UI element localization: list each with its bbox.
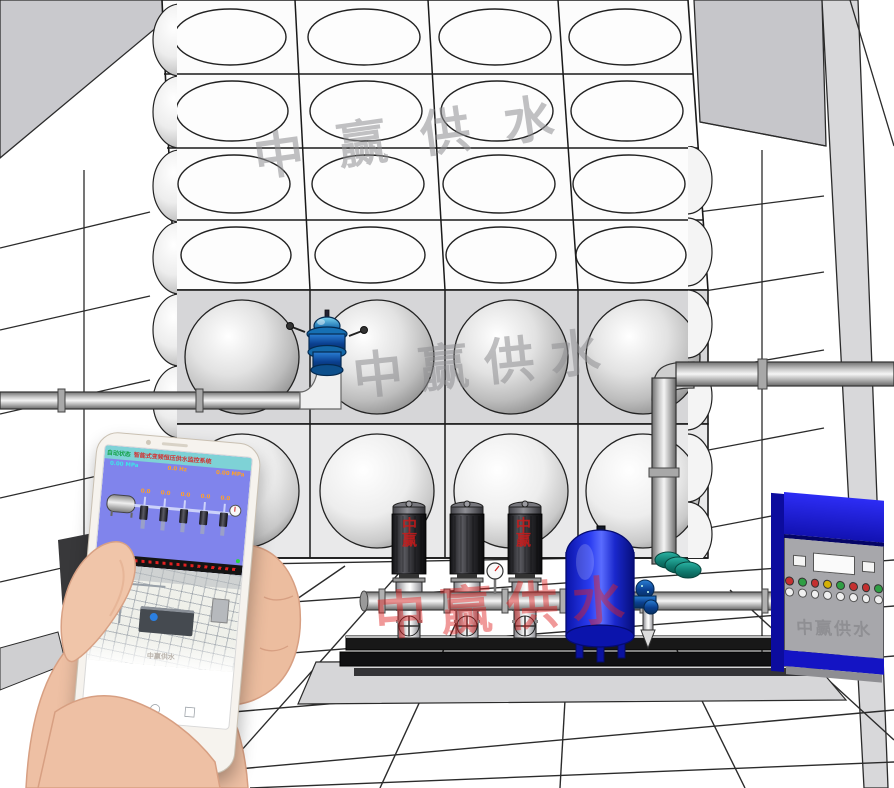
- roomview-pump-skid: [138, 606, 194, 637]
- phone-camera: [146, 440, 151, 445]
- scada-pumps: 0.0 0.0 0.0: [132, 488, 235, 537]
- scada-run-indicator: [236, 559, 240, 563]
- scada-pressure-tank-icon: [106, 494, 136, 514]
- scada-readout-right: 0.00 MPa: [216, 470, 245, 478]
- pump-room-photo-view: 中赢供水: [87, 563, 242, 672]
- scada-readout-left: 0.00 MPa: [110, 461, 139, 469]
- scada-monitor-view: 自动状态 智能式变频恒压供水监控系统 0.00 MPa 0.0 Hz 0.00 …: [95, 445, 252, 575]
- scada-readout-mid: 0.0 Hz: [167, 466, 187, 474]
- nav-icon: ○: [149, 702, 161, 716]
- roomview-cabinet: [211, 598, 230, 623]
- scada-gauge-icon: [229, 504, 242, 517]
- phone-speaker: [162, 442, 188, 447]
- scene: 中赢供水 中赢供水: [0, 0, 894, 788]
- scada-status: 自动状态: [107, 447, 132, 458]
- phone-screen: 自动状态 智能式变频恒压供水监控系统 0.00 MPa 0.0 Hz 0.00 …: [81, 444, 253, 730]
- smartphone: 自动状态 智能式变频恒压供水监控系统 0.00 MPa 0.0 Hz 0.00 …: [69, 430, 262, 775]
- android-nav-bar: ◁○□: [82, 696, 230, 722]
- nav-icon: □: [183, 705, 196, 719]
- roomview-blue-pump: [149, 612, 158, 621]
- nav-icon: ◁: [116, 699, 127, 713]
